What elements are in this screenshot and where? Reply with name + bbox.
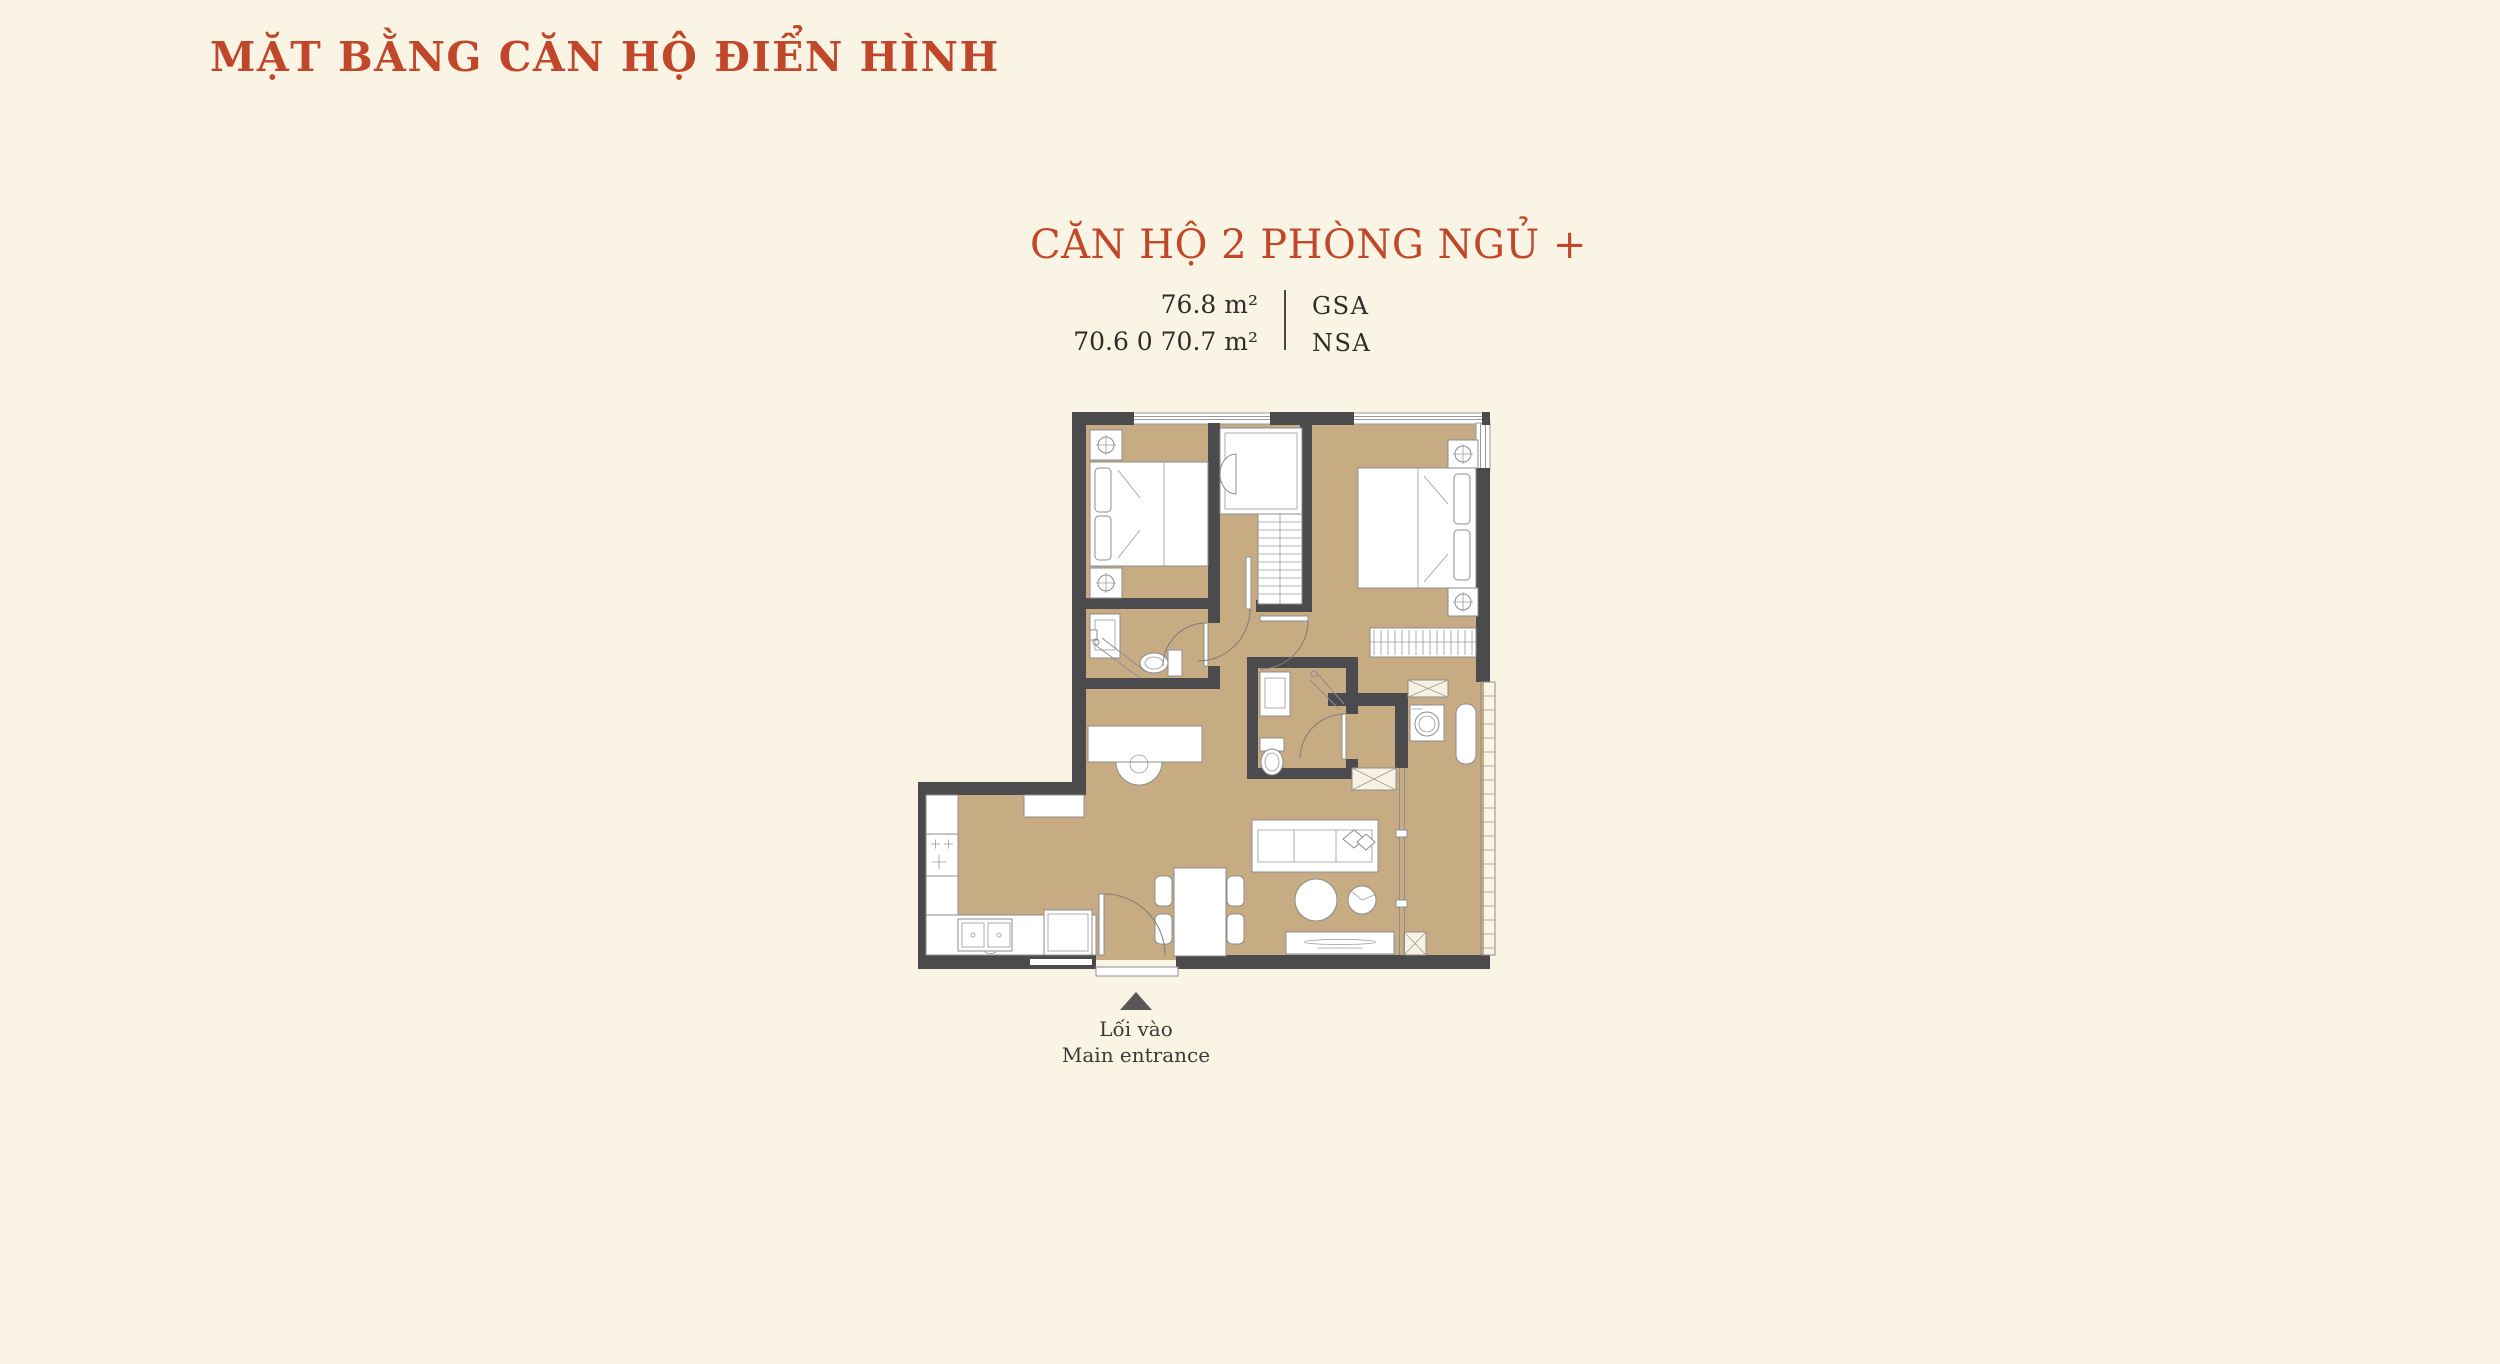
nightstand-lamp-icon — [1448, 440, 1478, 468]
gsa-value: 76.8 m² — [1000, 286, 1258, 323]
sink-icon — [1260, 672, 1290, 716]
washing-machine-icon — [1410, 705, 1444, 741]
closet-shelves-icon — [1258, 514, 1302, 604]
nightstand-lamp-icon — [1090, 430, 1122, 460]
floor-plan-drawing — [918, 410, 1518, 990]
double-bed-icon — [1090, 462, 1208, 566]
entrance-marker: Lối vào Main entrance — [1016, 992, 1256, 1068]
shaft-icon — [1404, 932, 1426, 955]
dining-table-icon — [1174, 868, 1226, 956]
nightstand-lamp-icon — [1448, 588, 1478, 616]
unit-name: CĂN HỘ 2 PHÒNG NGỦ + — [1030, 222, 1587, 268]
armchair-icon — [1348, 886, 1377, 914]
tv-console-icon — [1286, 932, 1394, 954]
sink-icon — [1090, 614, 1120, 658]
chair-icon — [1227, 914, 1244, 944]
stove-icon — [926, 834, 958, 876]
wall-vent — [1030, 959, 1092, 965]
sofa-icon — [1252, 820, 1378, 872]
entrance-label-vi: Lối vào — [1016, 1016, 1256, 1042]
kitchen-sink-icon — [958, 919, 1012, 954]
double-bed-icon — [1358, 468, 1476, 588]
door-leaf — [1099, 894, 1104, 955]
fridge-icon — [1044, 910, 1092, 955]
door-threshold — [1096, 967, 1178, 976]
area-values: 76.8 m² 70.6 0 70.7 m² — [1000, 286, 1258, 360]
nsa-value: 70.6 0 70.7 m² — [1000, 323, 1258, 360]
chair-icon — [1227, 876, 1244, 906]
area-divider — [1284, 290, 1286, 350]
gsa-label: GSA — [1312, 288, 1371, 325]
toilet-icon — [1260, 738, 1284, 775]
chair-icon — [1155, 876, 1172, 906]
nsa-label: NSA — [1312, 325, 1371, 362]
page-title: MẶT BẰNG CĂN HỘ ĐIỂN HÌNH — [210, 33, 1000, 81]
floor-plan-page: MẶT BẰNG CĂN HỘ ĐIỂN HÌNH CĂN HỘ 2 PHÒNG… — [0, 0, 2500, 1364]
entrance-arrow-icon — [1120, 992, 1152, 1010]
entrance-label-en: Main entrance — [1016, 1042, 1256, 1068]
floor-plan — [918, 410, 1518, 990]
coffee-table-icon — [1295, 879, 1337, 921]
wardrobe-icon — [1370, 628, 1476, 657]
kitchen-counter — [1024, 795, 1084, 817]
nightstand-lamp-icon — [1090, 568, 1122, 598]
shaft-icon — [1352, 768, 1396, 790]
balcony-bench-icon — [1456, 704, 1476, 764]
area-labels: GSA NSA — [1312, 288, 1371, 362]
shaft-icon — [1408, 680, 1448, 697]
